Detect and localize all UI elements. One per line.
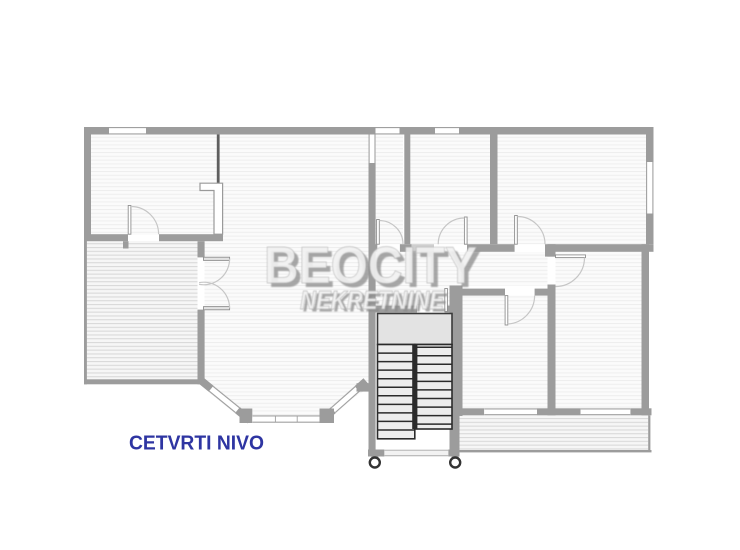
- svg-text:CETVRTI NIVO: CETVRTI NIVO: [129, 433, 264, 455]
- svg-text:NEKRETNINE: NEKRETNINE: [300, 285, 445, 315]
